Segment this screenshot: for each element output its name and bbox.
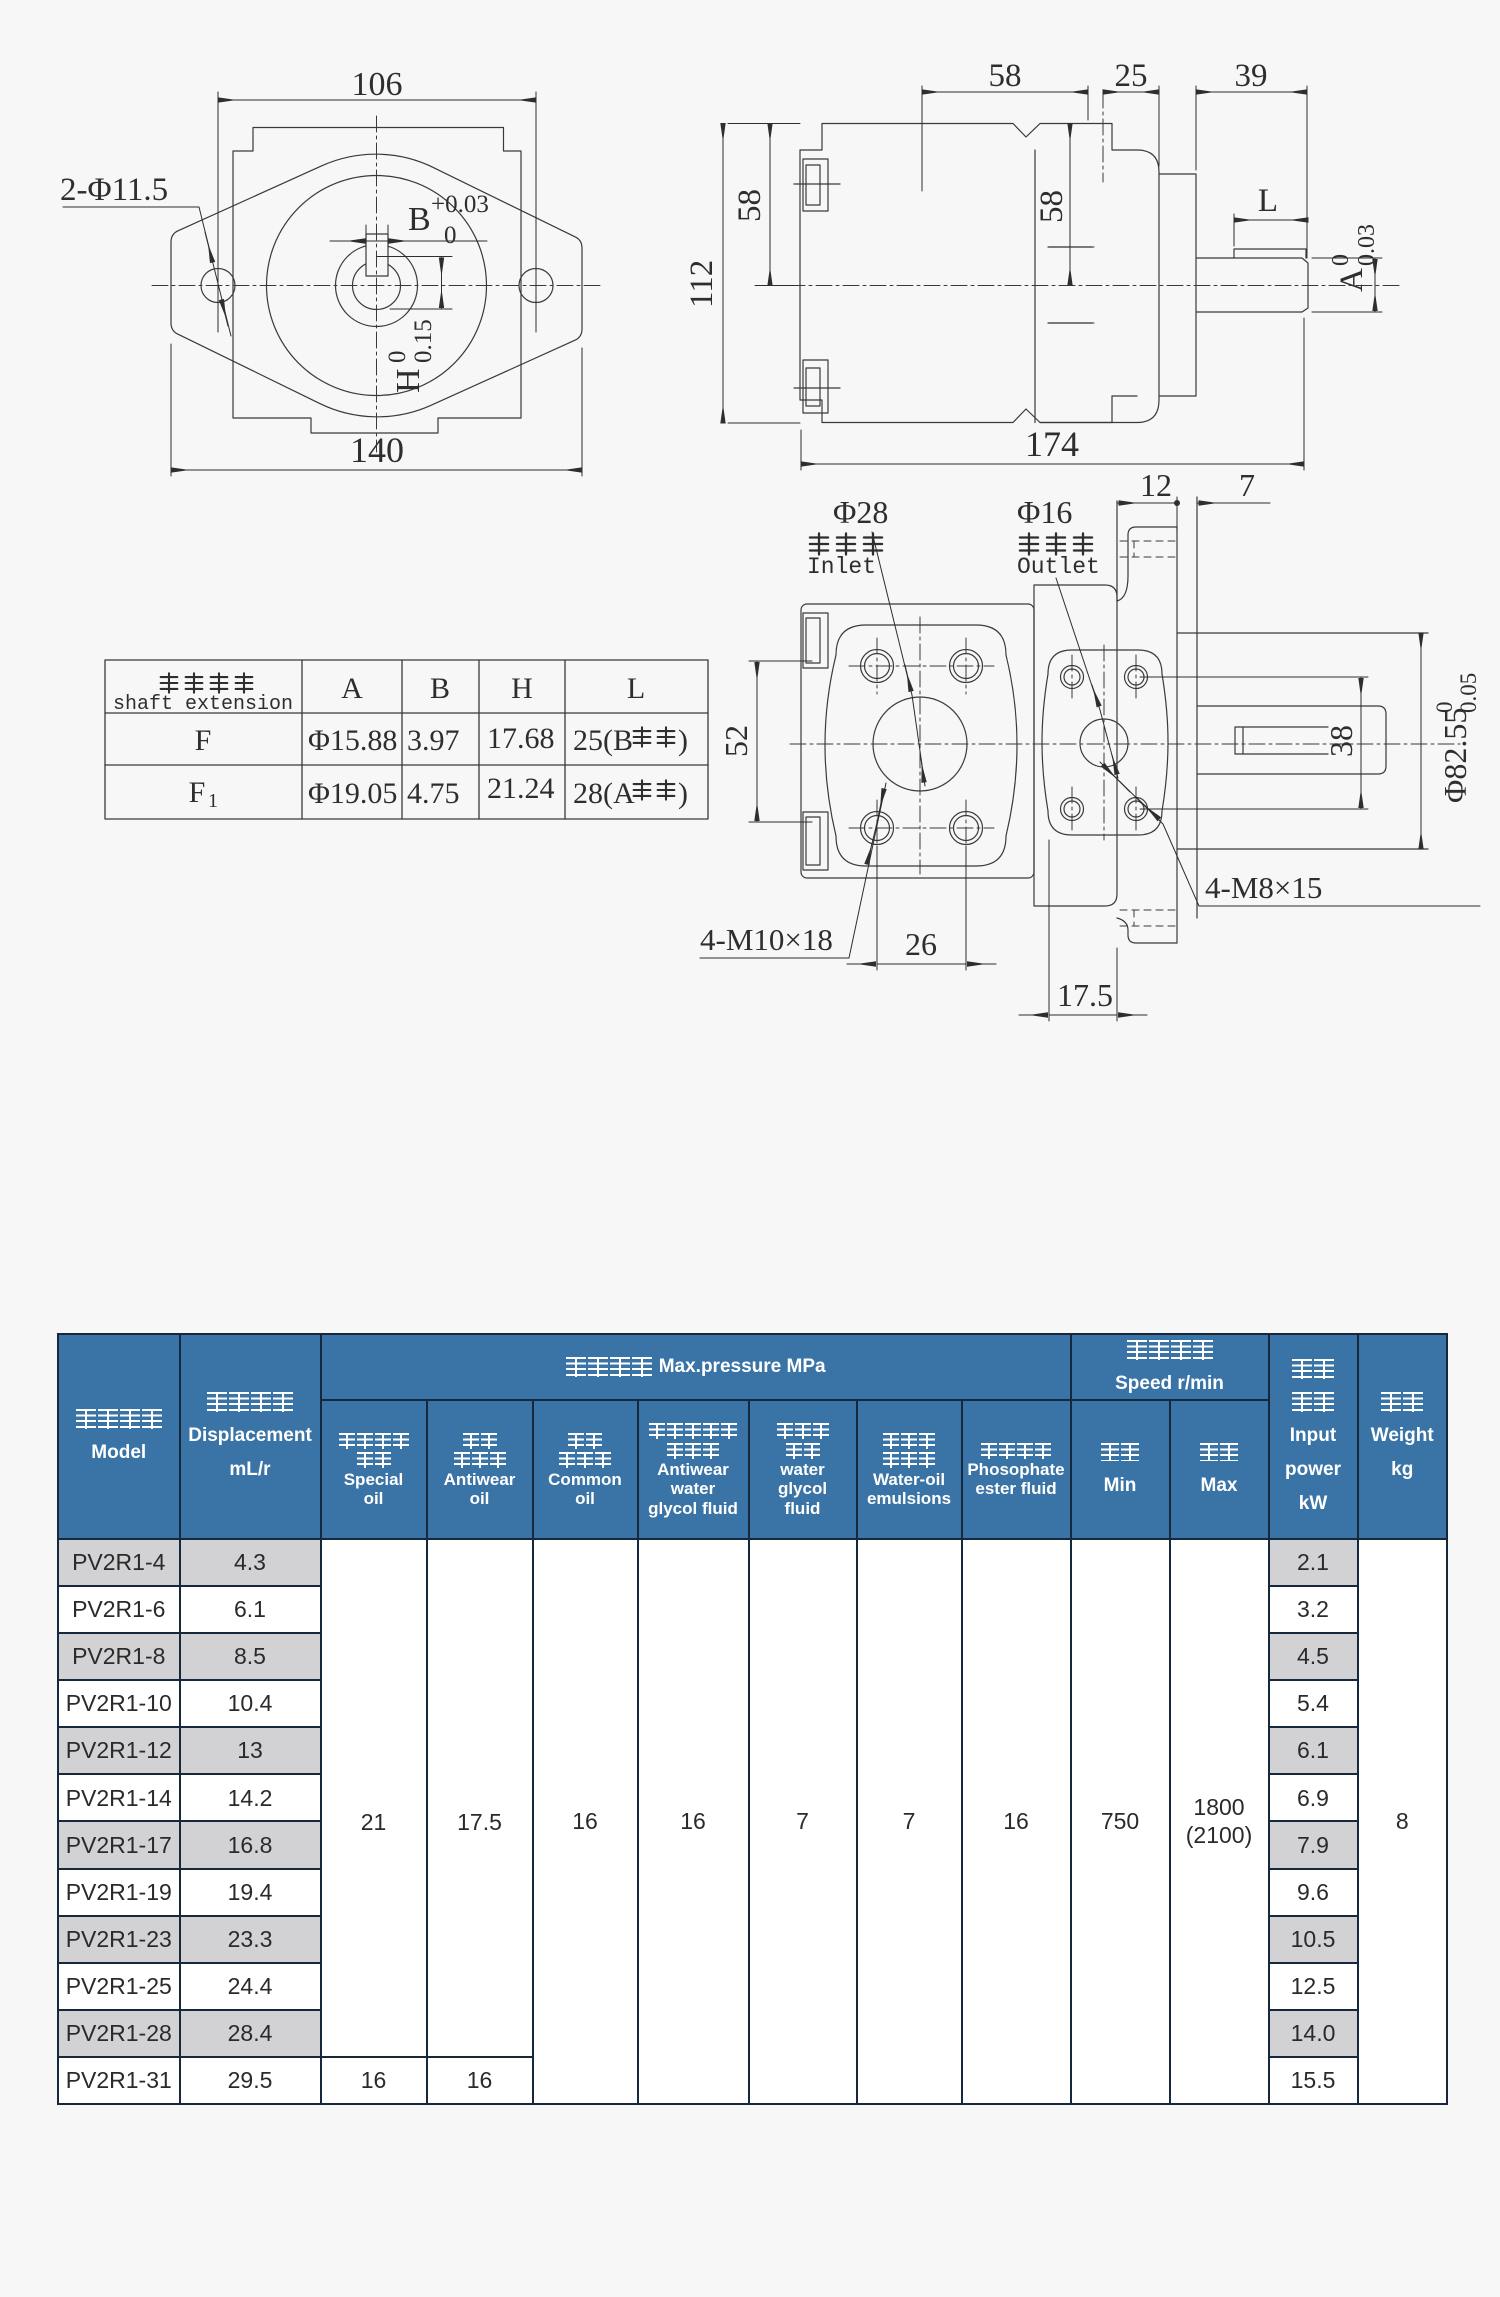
svg-text:106: 106 — [352, 66, 403, 103]
svg-text:0.05: 0.05 — [1456, 673, 1481, 713]
svg-text:21.24: 21.24 — [487, 772, 555, 805]
svg-text:): ) — [678, 724, 688, 757]
svg-text:4-M8×15: 4-M8×15 — [1205, 870, 1322, 905]
svg-text:2-Φ11.5: 2-Φ11.5 — [60, 172, 168, 208]
svg-text:17.5: 17.5 — [1057, 977, 1113, 1013]
svg-text:Φ28: Φ28 — [833, 494, 888, 530]
svg-text:Φ19.05: Φ19.05 — [308, 777, 397, 810]
svg-text:+0.03: +0.03 — [431, 191, 489, 218]
svg-text:4-M10×18: 4-M10×18 — [700, 922, 833, 957]
svg-text:38: 38 — [1323, 725, 1359, 757]
svg-text:Φ82.55: Φ82.55 — [1437, 708, 1473, 803]
svg-text:B: B — [408, 201, 431, 238]
svg-text:B: B — [430, 672, 450, 705]
svg-text:174: 174 — [1025, 424, 1079, 464]
svg-text:0.15: 0.15 — [410, 319, 437, 363]
svg-text:39: 39 — [1235, 58, 1268, 94]
svg-text:0.03: 0.03 — [1354, 224, 1380, 266]
svg-text:25(B: 25(B — [573, 724, 633, 757]
svg-text:Inlet: Inlet — [807, 554, 876, 580]
svg-text:Φ16: Φ16 — [1017, 494, 1072, 530]
svg-text:H: H — [390, 368, 427, 393]
svg-text:17.68: 17.68 — [487, 722, 555, 755]
svg-text:26: 26 — [905, 926, 937, 962]
svg-text:58: 58 — [989, 58, 1022, 94]
svg-text:L: L — [627, 672, 645, 705]
svg-text:0: 0 — [384, 351, 411, 364]
svg-text:140: 140 — [350, 430, 404, 470]
svg-text:1: 1 — [208, 790, 218, 812]
svg-text:A: A — [341, 672, 363, 705]
svg-text:A: A — [1334, 268, 1370, 292]
svg-text:F: F — [189, 776, 206, 809]
svg-text:L: L — [1258, 183, 1278, 219]
svg-text:112: 112 — [684, 260, 720, 308]
svg-text:58: 58 — [732, 189, 768, 222]
svg-text:0: 0 — [444, 222, 457, 249]
svg-text:0: 0 — [1432, 702, 1457, 714]
svg-text:0: 0 — [1328, 254, 1354, 266]
svg-text:F: F — [195, 724, 212, 757]
svg-text:28(A: 28(A — [573, 777, 635, 810]
svg-text:): ) — [678, 777, 688, 810]
svg-text:shaft extension: shaft extension — [113, 693, 293, 716]
svg-text:3.97: 3.97 — [407, 724, 460, 757]
svg-text:12: 12 — [1140, 467, 1172, 503]
svg-text:Φ15.88: Φ15.88 — [308, 724, 397, 757]
svg-text:52: 52 — [718, 725, 754, 757]
svg-text:Outlet: Outlet — [1017, 554, 1100, 580]
svg-text:H: H — [511, 672, 533, 705]
svg-text:7: 7 — [1239, 467, 1255, 503]
svg-text:4.75: 4.75 — [407, 777, 460, 810]
svg-text:25: 25 — [1115, 58, 1148, 94]
svg-text:58: 58 — [1034, 190, 1070, 223]
